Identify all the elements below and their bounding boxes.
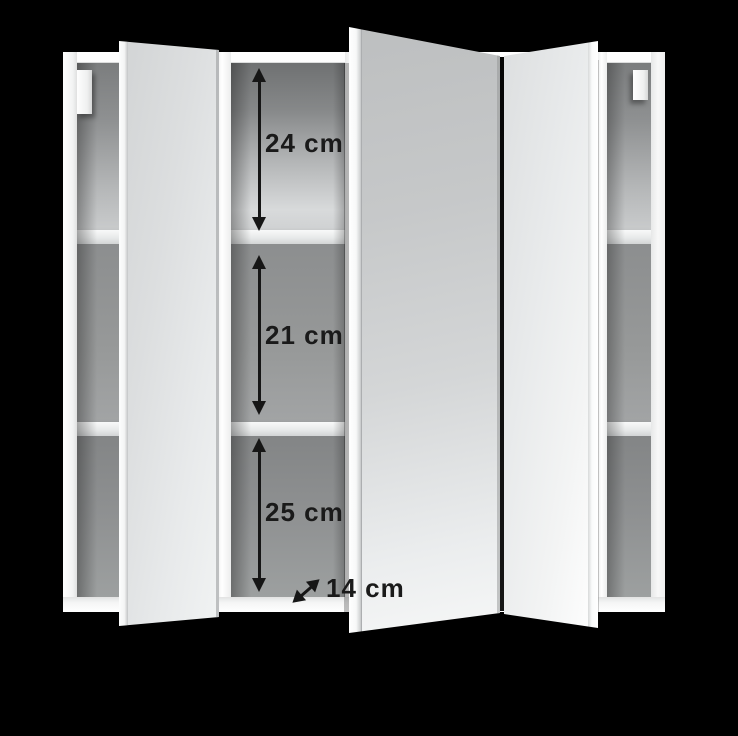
left-interior-side-shadow xyxy=(77,63,97,598)
cabinet-frame-left xyxy=(63,52,77,612)
right-open-shelf-column xyxy=(605,63,651,598)
dimension-label-25cm: 25 cm xyxy=(265,499,344,525)
dimension-label-14cm: 14 cm xyxy=(326,575,405,601)
arrow-shaft xyxy=(258,267,261,403)
arrow-shaft xyxy=(258,80,261,219)
product-image: 24 cm 21 cm 25 cm 14 cm xyxy=(0,0,738,736)
center-interior-side-shadow xyxy=(231,63,251,598)
cabinet-frame-right xyxy=(651,52,665,612)
door-hinge-shadow-center xyxy=(344,63,349,612)
wall-mount-bracket-right xyxy=(633,70,648,100)
dimension-arrow-25cm xyxy=(252,438,266,592)
dimension-label-24cm: 24 cm xyxy=(265,130,344,156)
arrow-down-icon xyxy=(252,217,266,231)
dimension-label-21cm: 21 cm xyxy=(265,322,344,348)
mirror-door-middle-shade xyxy=(497,27,500,633)
arrow-down-icon xyxy=(252,401,266,415)
mirror-door-right-edge xyxy=(588,41,598,628)
right-interior-side-shadow xyxy=(605,63,625,598)
mirror-door-right xyxy=(504,41,598,628)
dimension-arrow-24cm xyxy=(252,68,266,231)
mirror-door-middle-glass xyxy=(362,27,500,633)
mirror-door-left-edge xyxy=(119,41,128,626)
mirror-door-right-glass xyxy=(504,41,588,628)
arrow-shaft xyxy=(258,450,261,580)
mirror-door-left-glass xyxy=(128,41,219,626)
wall-mount-bracket-left xyxy=(76,70,92,114)
mirror-door-left xyxy=(119,41,219,626)
mirror-door-left-shade xyxy=(216,41,219,626)
dimension-arrow-21cm xyxy=(252,255,266,415)
arrow-down-icon xyxy=(252,578,266,592)
mirror-door-middle-edge xyxy=(349,27,362,633)
mirror-door-middle xyxy=(349,27,500,633)
